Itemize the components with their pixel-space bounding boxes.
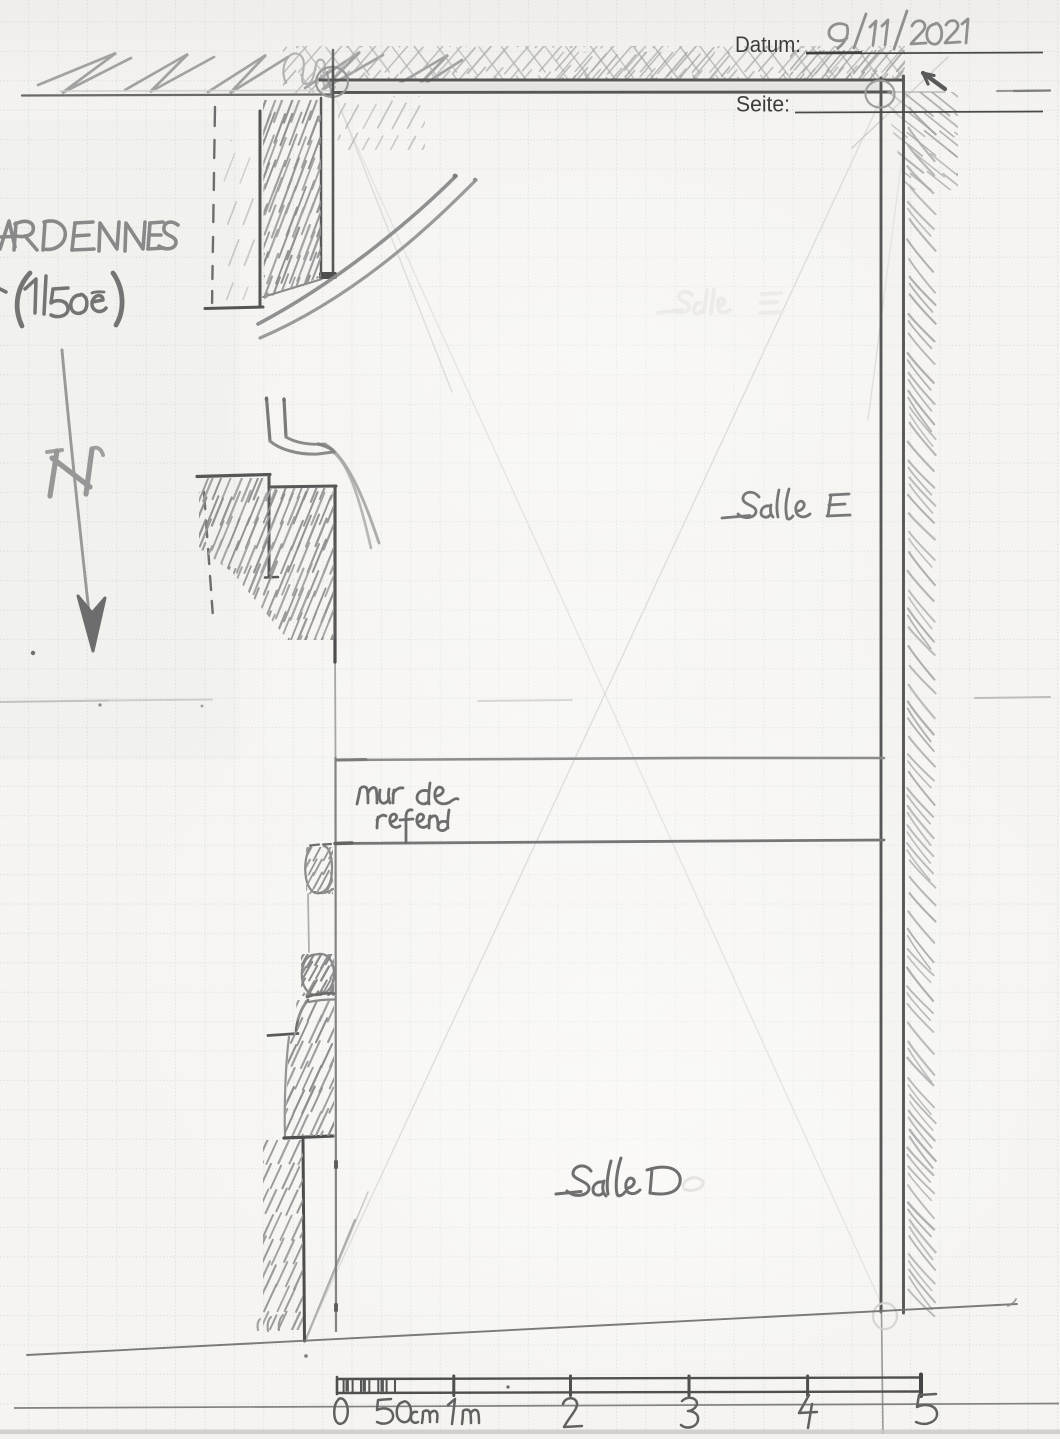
svg-text:Seite:: Seite: (736, 92, 790, 117)
svg-text:Datum:: Datum: (735, 32, 801, 57)
